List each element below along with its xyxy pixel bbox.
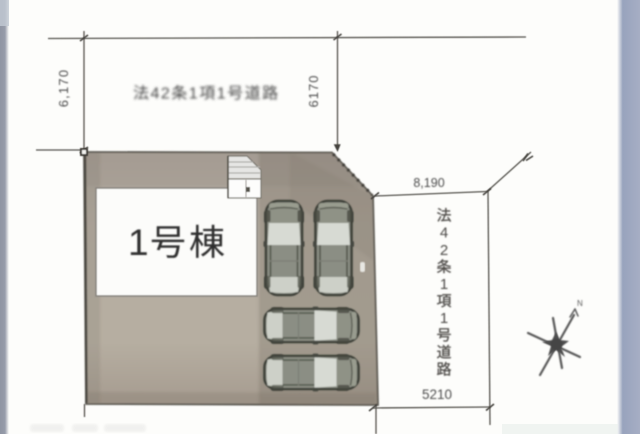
svg-text:1: 1 [440, 276, 448, 293]
svg-text:1: 1 [440, 310, 448, 327]
svg-text:5210: 5210 [422, 387, 452, 402]
svg-text:1: 1 [128, 222, 149, 263]
svg-text:4: 4 [440, 225, 448, 242]
svg-text:1: 1 [189, 86, 198, 103]
svg-text:1: 1 [217, 86, 226, 103]
svg-text:6,170: 6,170 [56, 69, 71, 108]
svg-text:2: 2 [440, 242, 448, 259]
svg-text:2: 2 [161, 86, 170, 103]
svg-text:4: 4 [151, 86, 160, 103]
svg-text:6170: 6170 [306, 75, 321, 108]
svg-text:8,190: 8,190 [413, 176, 444, 190]
svg-text:N: N [577, 299, 583, 308]
